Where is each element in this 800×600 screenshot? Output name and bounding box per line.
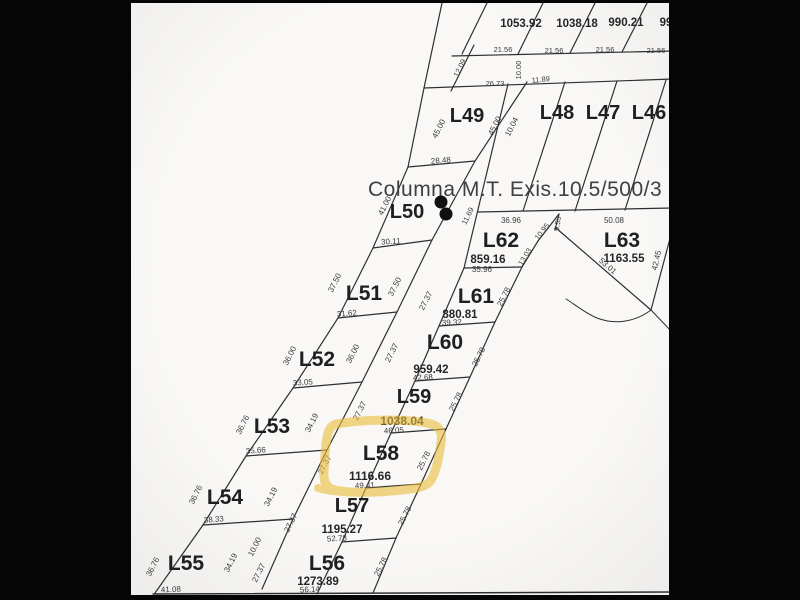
lot-label-L50: L50 (390, 201, 424, 223)
lot-label-L63: L63 (604, 229, 640, 252)
lot-label-L54: L54 (207, 486, 244, 509)
lot-label-L46: L46 (632, 102, 666, 124)
dimension-label: 41.08 (161, 584, 182, 594)
dimension-label: 21.56 (647, 46, 666, 55)
lot-label-L61: L61 (458, 285, 495, 308)
dimension-label: 31.62 (337, 308, 358, 318)
lot-label-L59: L59 (397, 386, 431, 408)
dimension-label: 35.66 (246, 445, 267, 455)
sheet-shading (128, 0, 672, 600)
photographed-plat-map: L49L48L47L46L50L62L63L51L61L52L60L53L59L… (0, 0, 800, 600)
lot-label-L57: L57 (335, 495, 369, 517)
dimension-label: 21.56 (596, 45, 615, 54)
dimension-label: 46.05 (384, 425, 405, 435)
lot-label-L55: L55 (168, 552, 205, 575)
lot-label-L49: L49 (450, 105, 484, 127)
lot-label-L60: L60 (427, 331, 463, 354)
dimension-label: 38.33 (204, 514, 225, 524)
dimension-label: 21.56 (545, 46, 564, 55)
lot-label-L51: L51 (346, 282, 383, 305)
area-label: 1053.92 (500, 18, 542, 30)
columna-annotation-text: Columna M.T. Exis.10.5/500/3 (368, 178, 662, 201)
dimension-label: 56.14 (300, 584, 321, 594)
lot-label-L53: L53 (254, 415, 290, 438)
area-label: 1038.18 (556, 18, 598, 30)
lot-label-L47: L47 (586, 102, 620, 124)
dimension-label: 36.96 (501, 216, 522, 225)
dimension-label: 30.11 (381, 236, 402, 246)
dimension-label: 50.08 (604, 216, 625, 225)
dimension-label: 35.96 (472, 265, 493, 274)
dimension-label: 42.68 (413, 372, 434, 382)
lot-label-L56: L56 (309, 552, 345, 575)
lot-label-L52: L52 (299, 348, 335, 371)
dimension-label: 21.56 (494, 45, 513, 54)
dimension-label: 33.05 (293, 377, 314, 387)
lot-label-L58: L58 (363, 442, 400, 465)
lot-label-L48: L48 (540, 102, 574, 124)
dimension-label: 39.32 (442, 317, 463, 327)
dimension-label: 26.73 (486, 79, 505, 88)
dimension-label: 28.48 (431, 155, 452, 165)
dimension-label: 10.00 (514, 61, 523, 80)
area-label: 990.21 (608, 17, 644, 29)
plat-map-drawing: L49L48L47L46L50L62L63L51L61L52L60L53L59L… (0, 0, 800, 600)
lot-label-L62: L62 (483, 229, 519, 252)
dimension-label: 11.89 (531, 74, 550, 85)
dimension-label: 52.78 (327, 533, 348, 543)
